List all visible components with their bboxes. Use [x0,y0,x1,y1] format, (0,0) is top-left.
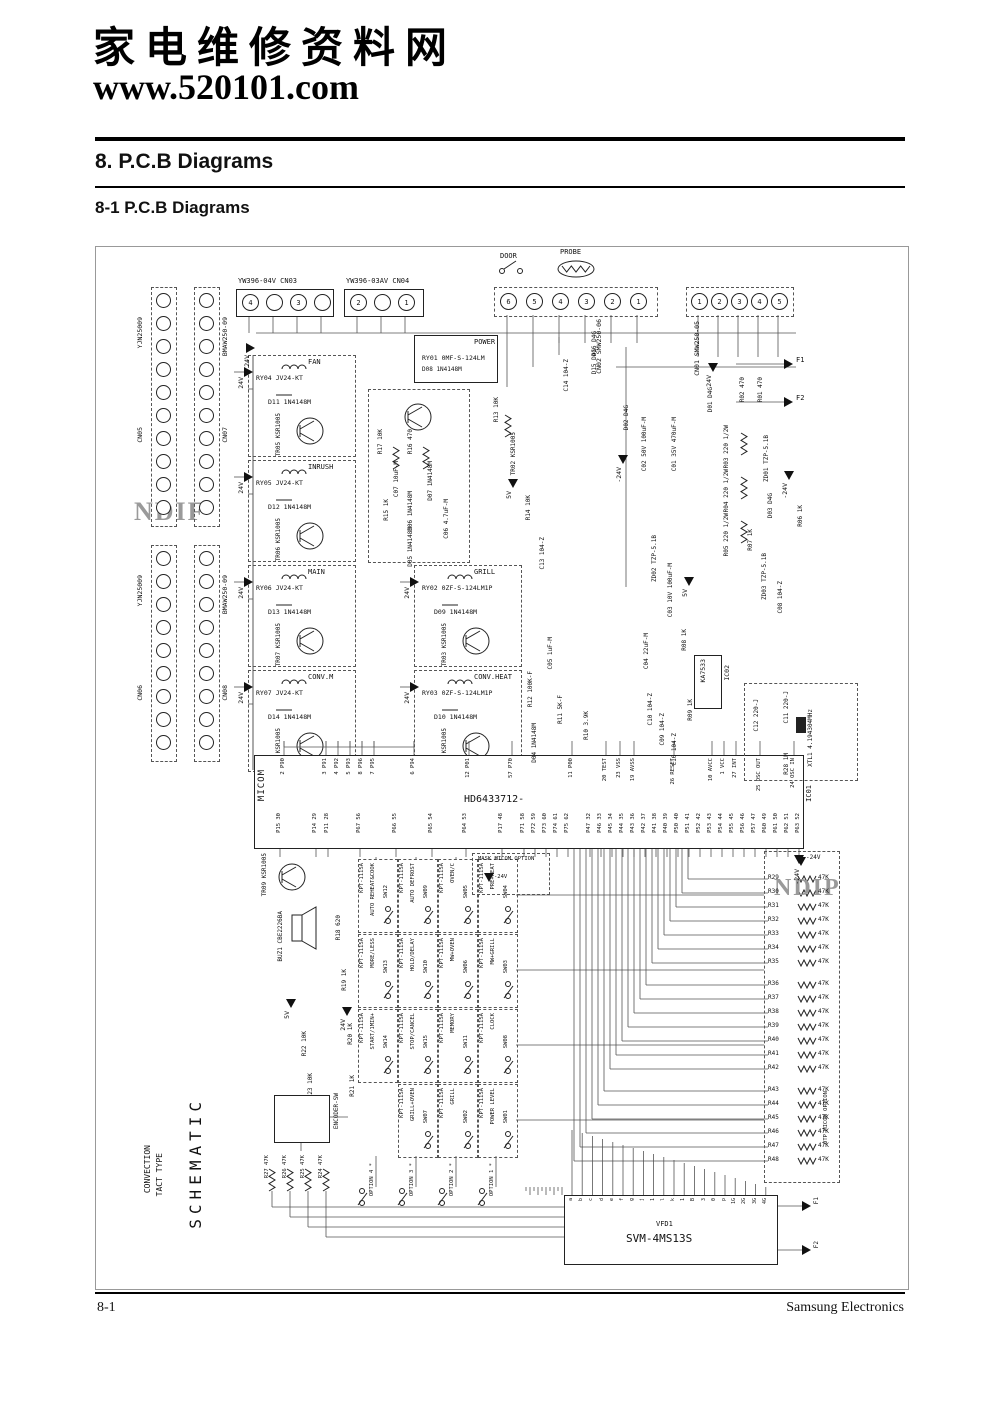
micom-pin-bottom: P65 54 [429,813,435,833]
part-label-r02: R02 470 [740,377,746,402]
connector-pin [156,735,171,750]
switch-ref: SW08 [504,1035,510,1048]
relay-name: CONV.M [308,674,333,681]
connector-pin [156,551,171,566]
micom-pin-bottom: P17 48 [499,813,505,833]
connector-pin: 2 [711,293,728,310]
option-switch-label[interactable]: OPTION 1 * [490,1163,496,1196]
switch-name: MW+GRILL [491,938,497,965]
switch-name: START/1MIN+ [371,1013,377,1049]
switch-ref: SW03 [504,960,510,973]
part-label-r18: R18 620 [336,915,342,940]
connector-pin [199,385,214,400]
switch-part: KPT-1115A [480,938,486,968]
switch-name: MEMORY [451,1013,457,1033]
part-label-c01: C01 35V 470uF-M [672,417,678,471]
relay-diode-label: D08 1N4148M [422,367,462,373]
switch-ref: SW07 [424,1110,430,1123]
fuse-label: F2 [814,1241,820,1248]
connector-pin [199,316,214,331]
micom-pin-bottom: P62 51 [785,813,791,833]
connector-pin [156,574,171,589]
connector-pin [314,294,331,311]
relay-block-inrush [248,460,356,562]
ic02-part: KA7533 [700,659,707,682]
switch-ref: SW13 [384,960,390,973]
switch-ref: SW12 [384,885,390,898]
switch-ref: SW02 [464,1110,470,1123]
part-label-c03: C03 10V 100uF-M [668,563,674,617]
micom-pin-bottom: P14 29 [313,813,319,833]
micom-pin-bottom: P54 44 [719,813,725,833]
volt-label: 24V [404,587,411,599]
connector-pin [156,712,171,727]
vfd-pin: j [640,1198,645,1201]
section-title: 8. P.C.B Diagrams [95,150,273,174]
volt-arrow [342,1007,352,1016]
part-label-r16: R16 470 [408,429,414,454]
bank-resistor-ref: R48 [768,1157,779,1163]
relay-ref-part: RY02 0ZF-S-124LM1P [422,585,492,592]
connector-title: YW396-03AV CN04 [346,278,409,285]
micom-pin-top: 5 P93 [347,758,353,775]
connector-pin: 5 [771,293,788,310]
part-label-zd02: ZD02 TZP-5.1B [652,535,658,582]
volt-label: -24V [494,875,507,881]
bank-resistor-ref: R40 [768,1037,779,1043]
switch-ref: SW14 [384,1035,390,1048]
mask-option-label: MASK MICOM OPTION [478,857,544,863]
micom-pin-bottom: P53 43 [708,813,714,833]
micom-pin-bottom: P72 59 [532,813,538,833]
connector-pin: 3 [290,294,307,311]
vfd-box [564,1195,778,1265]
bank-resistor-value: 47K [818,1051,829,1057]
micom-pin-top: 2 P90 [281,758,287,775]
vfd-pin: c [589,1198,594,1201]
relay-transistor-label: TR06 KSR1005 [276,518,282,561]
micom-pin-top: 20 TEST [603,758,609,781]
connector-pin [374,294,391,311]
vfd-pin: k [671,1198,676,1201]
micom-pin-top: 27 INT [733,758,739,778]
type-label-1: CONVECTION [144,1145,152,1193]
part-label-r11: R11 5K-F [558,695,564,724]
relay-ref-part: RY07 JV24-KT [256,690,303,697]
bank-resistor-ref: R30 [768,889,779,895]
micom-pin-bottom: P71 58 [521,813,527,833]
switch-part: KPT-1115A [480,1088,486,1118]
part-label-r15: R15 1K [384,499,390,521]
micom-pin-bottom: P61 50 [774,813,780,833]
connector-pin [156,643,171,658]
micom-pin-bottom: P60 49 [763,813,769,833]
part-label-zd03: ZD03 TZP-5.1B [762,553,768,600]
volt-label: 5V [506,491,513,499]
volt-label: -24V [616,467,623,483]
volt-arrow [684,577,694,586]
left-resistor-r27: R27 47K [265,1155,271,1178]
connector-pin: 3 [578,293,595,310]
oscillator-cluster [744,683,858,781]
micom-pin-bottom: P46 33 [598,813,604,833]
micom-pin-bottom: P15 30 [277,813,283,833]
micom-pin-bottom: P52 42 [697,813,703,833]
switch-ref: SW01 [504,1110,510,1123]
connector-pin: 2 [350,294,367,311]
bank-resistor-value: 47K [818,1065,829,1071]
connector-pin: 4 [751,293,768,310]
connector-pin [199,712,214,727]
connector-pin [156,477,171,492]
relay-name: INRUSH [308,464,333,471]
part-label-d15: D15 D4G [592,349,598,374]
part-label-r04: R04 220 1/2W [724,469,730,512]
vfd-pin: g [630,1198,635,1201]
vfd-part: SVM-4MS13S [626,1233,692,1245]
micom-pin-top: 19 AVSS [631,758,637,781]
connector-pin: 2 [604,293,621,310]
bank-resistor-value: 47K [818,981,829,987]
part-label-c10: C10 104-Z [648,693,654,726]
volt-arrow [794,855,804,864]
switch-name: OVEN/C [451,863,457,883]
part-label-r06: R06 1K [798,505,804,527]
micom-pin-bottom: P50 40 [675,813,681,833]
relay-name: CONV.HEAT [474,674,512,681]
part-label-c05: C05 1uF-M [548,637,554,670]
switch-name: MORE/LESS [371,938,377,968]
micom-pin-top: 8 P96 [359,758,365,775]
connector-pin [199,597,214,612]
bank-resistor-value: 47K [818,889,829,895]
buzzer-tr-label: TR09 KSR1005 [262,853,268,896]
bank-resistor-ref: R34 [768,945,779,951]
fuse-arrow [802,1201,811,1211]
connector-id-label: CN08 [222,685,229,701]
connector-pin [199,735,214,750]
part-label-d01: D01 D4G [708,387,714,412]
part-label-r03: R03 220 1/2W [724,425,730,468]
schematic-label: SCHEMATIC [188,1097,205,1229]
part-label-r09: R09 1K [688,699,694,721]
bank-resistor-ref: R41 [768,1051,779,1057]
relay-block-fan [248,355,356,457]
option-switch-label[interactable]: OPTION 3 * [410,1163,416,1196]
switch-part: KPT-1115A [440,1088,446,1118]
part-label-d02: D02 D4G [624,405,630,430]
connector-pin [156,362,171,377]
switch-part: KPT-1115A [360,1013,366,1043]
vfd-pin: 0 [712,1198,717,1201]
part-label-c12: C12 220-J [754,699,760,732]
relay-diode-label: D10 1N4148M [434,714,477,721]
connector-pin [156,293,171,308]
fuse-arrow [802,1245,811,1255]
left-resistor-r26: R26 47K [283,1155,289,1178]
volt-arrow [484,873,494,882]
connector-pin: 6 [500,293,517,310]
encoder-box [274,1095,330,1143]
connector-pin: 1 [630,293,647,310]
connector-pin [199,293,214,308]
micom-pin-bottom: P41 38 [653,813,659,833]
part-label-r20: R20 1K [348,1023,354,1045]
switch-name: MW+OVEN [451,938,457,961]
part-label-r01: R01 470 [758,377,764,402]
switch-part: KPT-1115A [400,1013,406,1043]
bank-resistor-value: 47K [818,995,829,1001]
site-logo-url: www.520101.com [93,66,359,108]
volt-label: -24V [782,483,789,499]
vfd-pin: 1 [651,1198,656,1201]
micom-pin-bottom: P74 61 [554,813,560,833]
bank-resistor-value: 47K [818,945,829,951]
relay-diode-label: D09 1N4148M [434,609,477,616]
micom-pin-top: 23 VSS [617,758,623,778]
page-number: 8-1 [97,1300,116,1316]
otp-option-label: OTP MICOM OPTION [824,1091,830,1144]
switch-name: STOP/CANCEL [411,1013,417,1049]
connector-pin: 4 [552,293,569,310]
bank-resistor-ref: R36 [768,981,779,987]
connector-pin [199,431,214,446]
micom-pin-bottom: P75 62 [565,813,571,833]
part-label-d03: D03 D4G [768,493,774,518]
micom-pin-bottom: P55 45 [730,813,736,833]
connector-pin [199,500,214,515]
vfd-pin: 1G [732,1198,737,1204]
bank-resistor-ref: R29 [768,875,779,881]
switch-name: GRILL [451,1088,457,1105]
part-label-c09: C09 104-Z [660,713,666,746]
vfd-pin: 1 [681,1198,686,1201]
connector-id-label: CN06 [137,685,144,701]
connector-pin [156,454,171,469]
part-label-r28: R28 1M [784,753,790,775]
connector-title: YW396-04V CN03 [238,278,297,285]
micom-pin-bottom: P66 55 [393,813,399,833]
bank-resistor-value: 47K [818,959,829,965]
bank-resistor-ref: R35 [768,959,779,965]
bank-resistor-value: 47K [818,1037,829,1043]
switch-part: KPT-1115A [400,938,406,968]
micom-pin-bottom: P42 37 [642,813,648,833]
volt-label: 24V [244,355,251,367]
fuse-label: F1 [796,357,804,364]
micom-pin-top: 57 P70 [509,758,515,778]
bank-resistor-ref: R46 [768,1129,779,1135]
fuse-label: F2 [796,395,804,402]
switch-name: POWER LEVEL [491,1088,497,1124]
switch-part: KPT-1115A [360,863,366,893]
vfd-pin: d [600,1198,605,1201]
micom-pin-bottom: P40 39 [664,813,670,833]
subsection-title: 8-1 P.C.B Diagrams [95,198,250,218]
switch-part: KPT-1115A [440,863,446,893]
relay-diode-label: D14 1N4148M [268,714,311,721]
part-label-c06: C06 4.7uF-M [444,499,450,539]
part-label-d04: D04 1N4148M [532,723,538,763]
volt-label: 24V [238,482,245,494]
switch-name: CLOCK [491,1013,497,1030]
micom-pin-bottom: P11 28 [325,813,331,833]
relay-block-main [248,565,356,667]
micom-pin-bottom: P56 46 [741,813,747,833]
relay-ref-part: RY03 0ZF-S-124LM1P [422,690,492,697]
volt-arrow [784,471,794,480]
connector-part-label: BMAW250-09 [222,575,229,614]
part-label-d05: D05 1N4148M [408,527,414,567]
connector-pin [156,666,171,681]
micom-pin-top: 1 VCC [721,758,727,775]
volt-arrow [286,999,296,1008]
switch-name: GRILL+OVEN [411,1088,417,1121]
micom-pin-top: 3 P91 [323,758,329,775]
part-label-d07: D07 1N4148M [428,461,434,501]
vfd-pin: e [610,1198,615,1201]
left-resistor-r25: R25 47K [301,1155,307,1178]
part-label-c16: C16 104-Z [672,733,678,766]
relay-transistor-label: TR05 KSR1005 [276,413,282,456]
micom-pin-bottom: P64 53 [463,813,469,833]
connector-pin: 1 [691,293,708,310]
relay-name: FAN [308,359,321,366]
relay-transistor-label: TR07 KSR1005 [276,623,282,666]
bank-resistor-ref: R43 [768,1087,779,1093]
connector-pin [156,385,171,400]
bank-resistor-value: 47K [818,917,829,923]
part-label-r07: R07 1K [748,529,754,551]
bank-resistor-ref: R32 [768,917,779,923]
part-label-zd01: ZD01 TZP-5.1B [764,435,770,482]
schematic-canvas: NDIFNDIPYJN25009CN05BMAW250-09CN07YJN250… [95,246,909,1290]
switch-name: AUTO REHEAT&COOK [371,863,377,916]
bank-resistor-value: 47K [818,903,829,909]
vfd-pin: p [722,1198,727,1201]
relay-ref-part: RY01 0MF-S-124LM [422,355,485,362]
connector-pin [156,597,171,612]
switch-part: KPT-1115A [400,863,406,893]
option-switch-label[interactable]: OPTION 2 * [450,1163,456,1196]
micom-pin-bottom: P63 52 [796,813,802,833]
relay-diode-label: D12 1N4148M [268,504,311,511]
volt-arrow [244,367,253,377]
xtal-label: XTL1 4.194304MHz [808,709,814,767]
connector-id-label: CN07 [222,427,229,443]
connector-pin: 1 [398,294,415,311]
connector-pin [199,666,214,681]
micom-pin-bottom: P47 32 [587,813,593,833]
micom-pin-top: 4 P92 [335,758,341,775]
connector-pin: 5 [526,293,543,310]
vfd-pin: a [569,1198,574,1201]
title-underline [95,186,905,188]
bank-resistor-ref: R39 [768,1023,779,1029]
connector-pin [199,477,214,492]
volt-arrow [244,472,253,482]
bank-resistor-value: 47K [818,1023,829,1029]
volt-arrow [618,455,628,464]
volt-label: 24V [238,692,245,704]
bank-resistor-ref: R47 [768,1143,779,1149]
part-label-c02: C02 50V 100uF-M [642,417,648,471]
part-label-tr02: TR02 KSR1005 [511,432,517,475]
switch-part: KPT-1115A [400,1088,406,1118]
bank-resistor-value: 47K [818,931,829,937]
part-label-r22: R22 10K [302,1031,308,1056]
connector-pin [156,431,171,446]
connector-part-label: CN01 SMW250-05 [694,321,701,376]
connector-pin [199,551,214,566]
type-label-2: TACT TYPE [156,1153,164,1196]
volt-arrow [410,577,419,587]
bank-resistor-ref: R38 [768,1009,779,1015]
vfd-pin: 2G [742,1198,747,1204]
fuse-arrow [784,397,793,407]
option-switch-label[interactable]: OPTION 4 * [370,1163,376,1196]
switch-ref: SW06 [464,960,470,973]
switch-ref: SW15 [424,1035,430,1048]
connector-pin [199,339,214,354]
switch-ref: SW11 [464,1035,470,1048]
micom-pin-bottom: P57 47 [752,813,758,833]
vfd-pin: b [579,1198,584,1201]
switch-ref: SW10 [424,960,430,973]
volt-label: -24V [806,855,820,861]
connector-pin [156,689,171,704]
vfd-pin: 4G [763,1198,768,1204]
relay-name: MAIN [308,569,325,576]
vfd-pin: l [661,1198,666,1201]
switch-ref: SW05 [464,885,470,898]
volt-arrow [244,682,253,692]
relay-name: POWER [474,339,495,346]
vfd-pin: 3 [702,1198,707,1201]
volt-label: 24V [238,377,245,389]
switch-part: KPT-1115A [480,1013,486,1043]
connector-pin [266,294,283,311]
vfd-ref: VFD1 [656,1221,673,1228]
relay-diode-label: D13 1N4148M [268,609,311,616]
part-label-r05: R05 220 1/2W [724,513,730,556]
manual-page: 家电维修资料网 www.520101.com 8. P.C.B Diagrams… [0,0,992,1404]
micom-pin-bottom: P43 36 [631,813,637,833]
volt-label: 24V [238,587,245,599]
connector-pin [156,620,171,635]
connector-pin [199,574,214,589]
connector-pin: 4 [242,294,259,311]
company-name: Samsung Electronics [786,1300,904,1316]
connector-part-label: YJN25009 [137,575,144,606]
volt-label: 24V [404,692,411,704]
part-label-r17: R17 10K [378,429,384,454]
switch-part: KPT-1115A [360,938,366,968]
volt-label: 5V [284,1011,291,1019]
connector-pin [199,408,214,423]
micom-pin-bottom: P73 60 [543,813,549,833]
micom-pin-bottom: P67 56 [357,813,363,833]
probe-label: PROBE [560,249,581,256]
micom-pin-top: 10 AVCC [709,758,715,781]
vfd-pin: 3G [753,1198,758,1204]
relay-ref-part: RY04 JV24-KT [256,375,303,382]
bank-resistor-ref: R42 [768,1065,779,1071]
encoder-label: ENCODER-SW [334,1093,340,1129]
power-driver-cluster [368,389,470,563]
switch-part: KPT-1115A [440,1013,446,1043]
part-label-r08: R08 1K [682,629,688,651]
